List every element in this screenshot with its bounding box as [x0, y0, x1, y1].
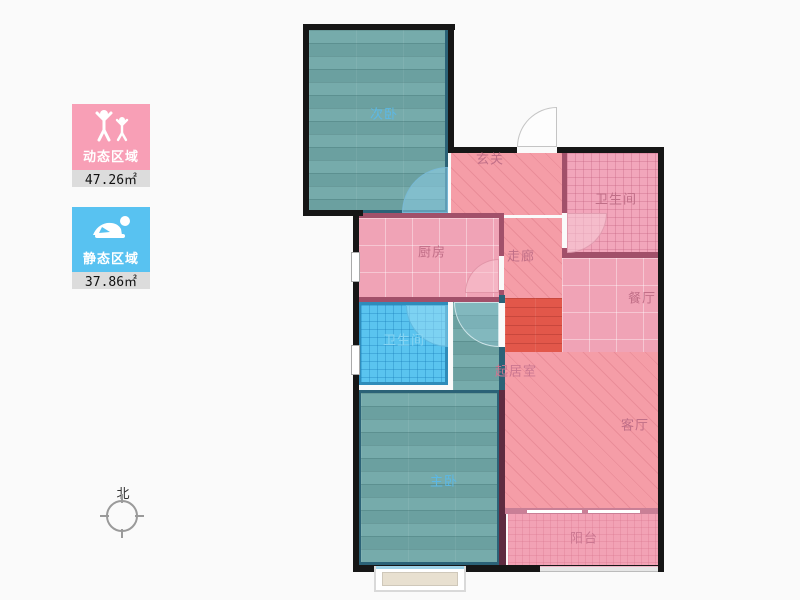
label-corridor: 走廊 [507, 246, 535, 265]
label-dining: 餐厅 [628, 288, 656, 307]
label-master-bedroom: 主卧 [430, 471, 458, 490]
wall-outer-left-bedroom2 [303, 24, 309, 216]
compass-tick-south [121, 529, 123, 538]
compass-tick-east [135, 515, 144, 517]
floor-plan-canvas: 次卧 玄关 卫生间 厨房 走廊 餐厅 卫生间 起居室 客厅 主卧 阳台 [0, 0, 800, 600]
balcony-sliding-door [527, 510, 582, 513]
resting-person-icon [72, 207, 150, 248]
legend-dynamic-zone-area: 47.26㎡ [72, 170, 150, 187]
room-entry-hall[interactable] [451, 153, 562, 215]
label-entry-hall: 玄关 [476, 149, 504, 168]
label-living-core: 起居室 [495, 361, 537, 380]
wall-bathroom-bottom [562, 252, 658, 258]
legend-static-zone-label: 静态区域 [83, 248, 139, 267]
legend-static-zone-card: 静态区域 [72, 207, 150, 272]
label-kitchen: 厨房 [418, 242, 446, 261]
compass-tick-west [100, 515, 109, 517]
window-bathroom [351, 345, 360, 375]
window-kitchen [351, 252, 360, 282]
legend-dynamic-zone-card: 动态区域 [72, 104, 150, 170]
legend-static-zone-area: 37.86㎡ [72, 272, 150, 289]
wall-bathroom-left [562, 153, 567, 213]
wall-outer-right [658, 147, 664, 572]
balcony-sliding-door [588, 510, 640, 513]
active-people-icon [72, 104, 150, 146]
wall-outer-top-2 [557, 147, 664, 153]
wall-master-right [499, 390, 505, 508]
label-main-bathroom: 卫生间 [595, 189, 637, 208]
label-balcony: 阳台 [570, 528, 598, 547]
compass-tick-north [121, 494, 123, 503]
corridor-red-floor-patch [505, 298, 562, 352]
bay-window-sill [382, 572, 458, 586]
door-arc-entrance [517, 107, 557, 147]
wall-kitchen-right [499, 216, 504, 256]
wall-outer-right-bedroom2 [448, 24, 454, 153]
wall-balcony-left [499, 508, 506, 567]
window-balcony [540, 566, 658, 572]
wall-vestibule-right-stub [499, 295, 505, 303]
wall-outer-top-bedroom2 [303, 24, 455, 30]
legend-dynamic-zone-label: 动态区域 [83, 146, 139, 165]
bay-window-glass-line [376, 566, 464, 569]
compass-icon [106, 500, 138, 532]
label-secondary-bedroom: 次卧 [370, 104, 398, 123]
label-second-bathroom: 卫生间 [383, 330, 425, 349]
label-living: 客厅 [621, 415, 649, 434]
wall-kitchen-top [358, 213, 504, 218]
